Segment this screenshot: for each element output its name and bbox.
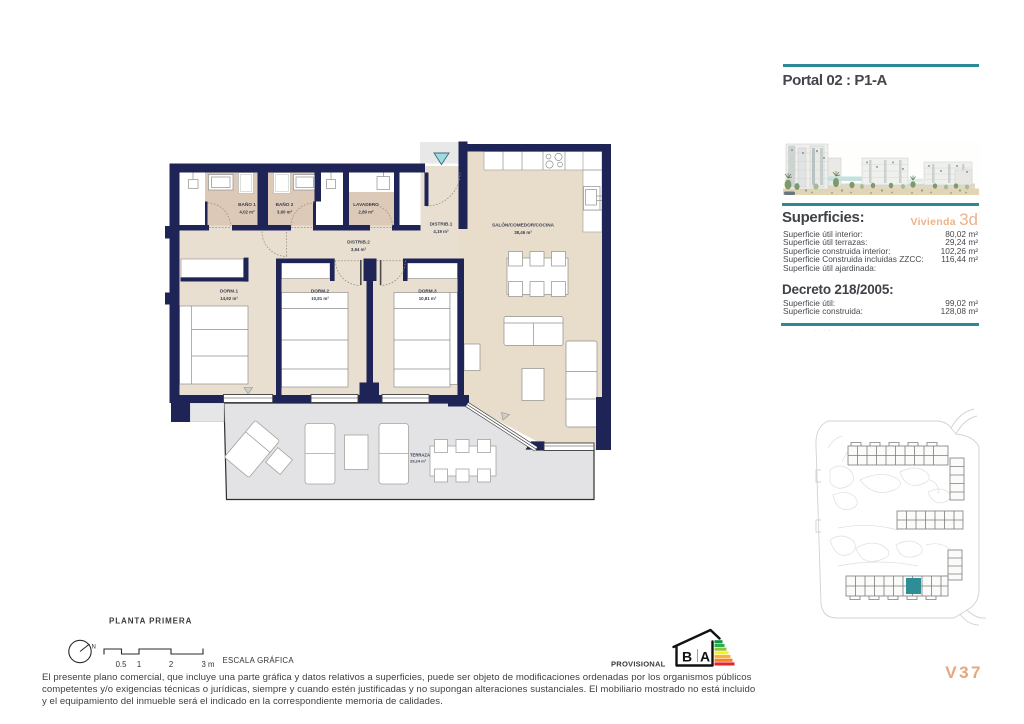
svg-text:B: B <box>682 649 692 665</box>
svg-text:3,64 m²: 3,64 m² <box>351 247 367 252</box>
svg-text:DORM.1: DORM.1 <box>220 289 239 294</box>
svg-text:PROVISIONAL: PROVISIONAL <box>611 660 666 669</box>
svg-text:DISTRIB.2: DISTRIB.2 <box>347 240 370 245</box>
svg-text:3,60 m²: 3,60 m² <box>277 210 293 215</box>
svg-text:BAÑO 1: BAÑO 1 <box>238 201 256 207</box>
svg-text:SALÓN/COMEDOR/COCINA: SALÓN/COMEDOR/COCINA <box>492 221 555 228</box>
svg-text:2,89 m²: 2,89 m² <box>358 210 374 215</box>
svg-text:29,24 m²: 29,24 m² <box>410 459 427 464</box>
svg-text:A: A <box>700 649 710 665</box>
svg-text:PLANTA PRIMERA: PLANTA PRIMERA <box>109 617 192 626</box>
svg-text:N: N <box>92 645 96 651</box>
svg-text:10,81 m²: 10,81 m² <box>419 296 437 301</box>
svg-text:ESCALA GRÁFICA: ESCALA GRÁFICA <box>223 656 295 665</box>
svg-text:4,02 m²: 4,02 m² <box>239 210 255 215</box>
svg-text:LAVADERO: LAVADERO <box>353 202 379 207</box>
svg-text:10,81 m²: 10,81 m² <box>311 296 329 301</box>
svg-text:2: 2 <box>169 660 173 669</box>
svg-text:V37: V37 <box>945 663 983 682</box>
svg-text:38,46 m²: 38,46 m² <box>514 230 532 235</box>
svg-text:14,92 m²: 14,92 m² <box>220 296 238 301</box>
svg-text:4,19 m²: 4,19 m² <box>433 229 449 234</box>
svg-text:DISTRIB.1: DISTRIB.1 <box>430 222 453 227</box>
svg-text:DORM.2: DORM.2 <box>311 289 330 294</box>
svg-text:1: 1 <box>137 660 141 669</box>
svg-text:BAÑO 2: BAÑO 2 <box>276 201 294 207</box>
svg-text:0.5: 0.5 <box>116 660 128 669</box>
svg-text:TERRAZA: TERRAZA <box>410 453 430 458</box>
svg-text:3 m: 3 m <box>202 660 215 669</box>
svg-text:DORM.3: DORM.3 <box>418 289 437 294</box>
